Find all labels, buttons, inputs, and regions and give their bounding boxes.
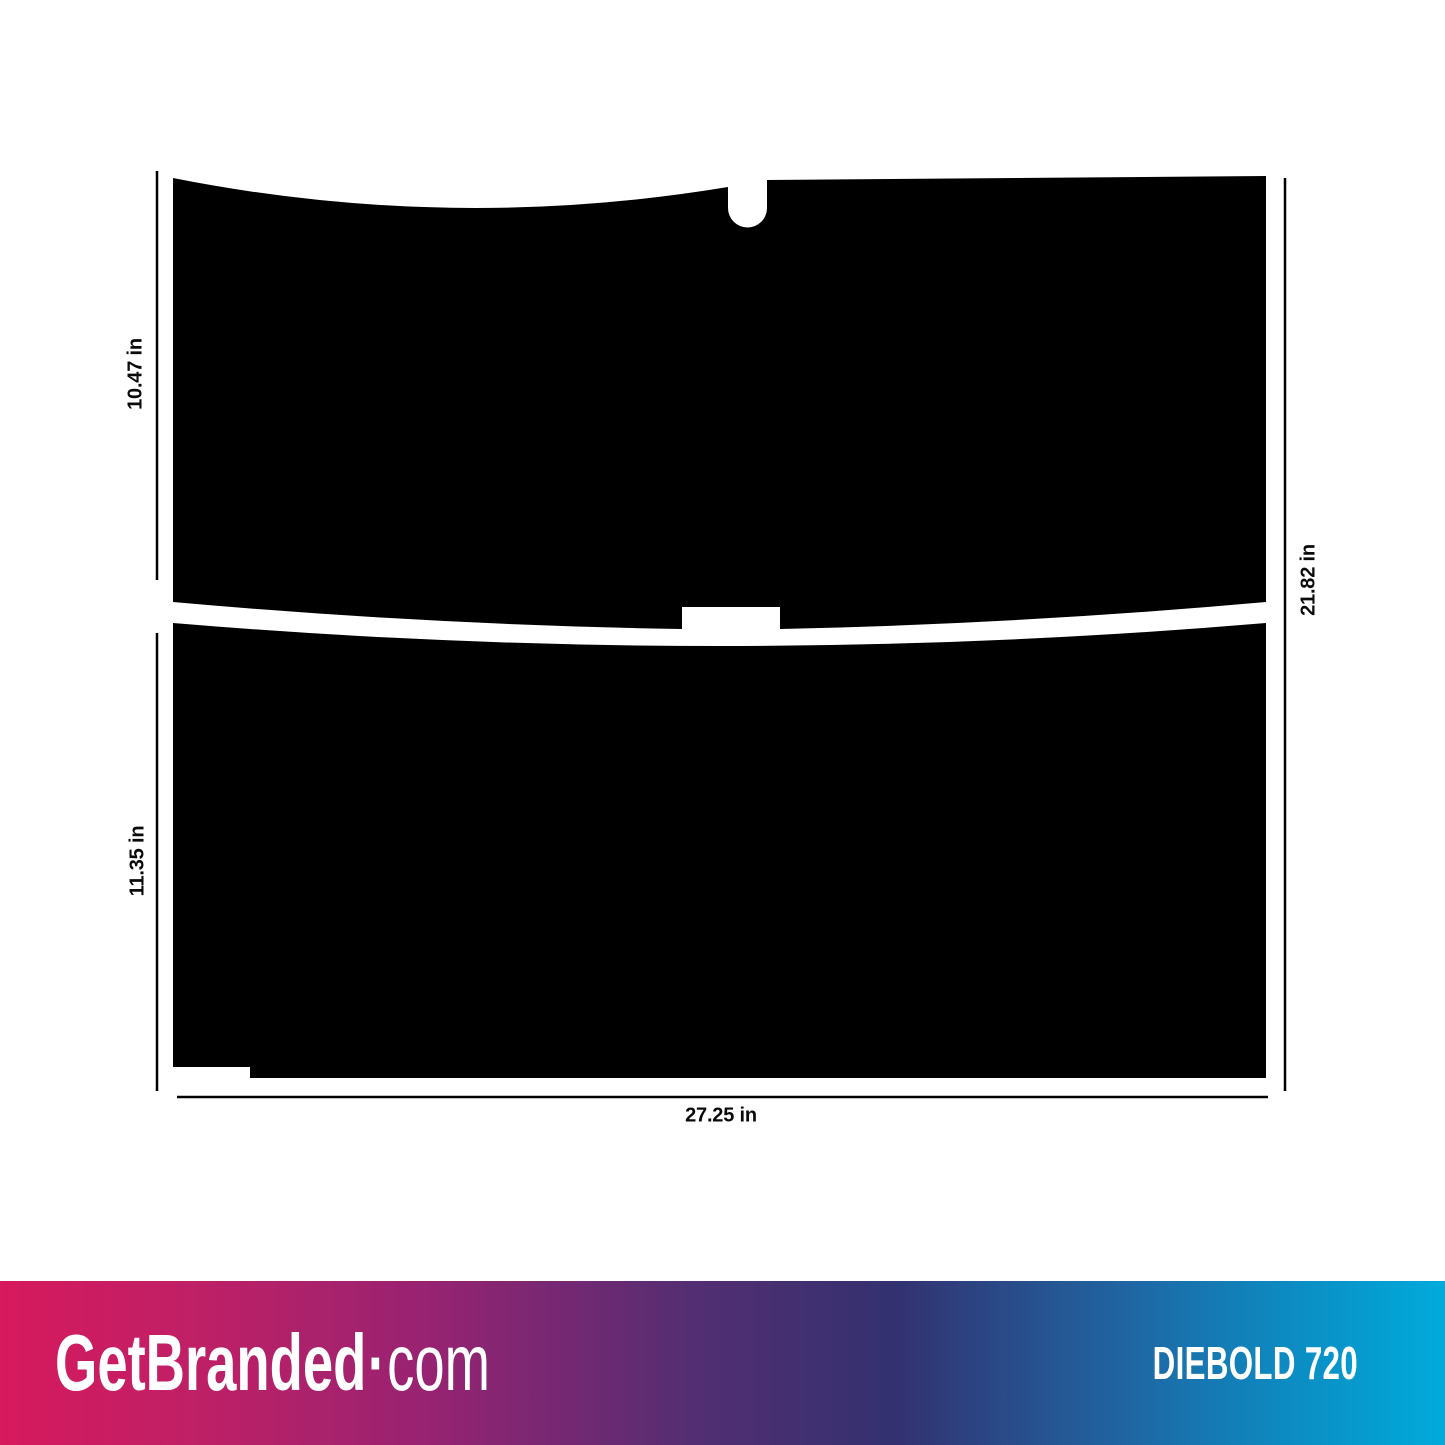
dimension-label-bottom: 27.25 in	[685, 1105, 757, 1128]
footer: GetBranded·com DIEBOLD 720	[0, 1281, 1445, 1445]
brand-name: GetBranded	[55, 1318, 366, 1407]
product-name: DIEBOLD 720	[1153, 1340, 1358, 1386]
die-cut-template	[0, 0, 1445, 1445]
brand-separator-dot: ·	[366, 1318, 387, 1407]
panel-top-shape	[173, 176, 1266, 629]
dimension-label-right: 21.82 in	[1298, 544, 1321, 616]
template-diagram: 10.47 in 11.35 in 21.82 in 27.25 in GetB…	[0, 0, 1445, 1445]
brand-tld: com	[387, 1318, 490, 1407]
dimension-label-bottom-left: 11.35 in	[127, 826, 150, 897]
dimension-label-top-left: 10.47 in	[125, 338, 148, 410]
brand-logo: GetBranded·com	[55, 1323, 490, 1403]
panel-bottom-shape	[173, 623, 1266, 1078]
